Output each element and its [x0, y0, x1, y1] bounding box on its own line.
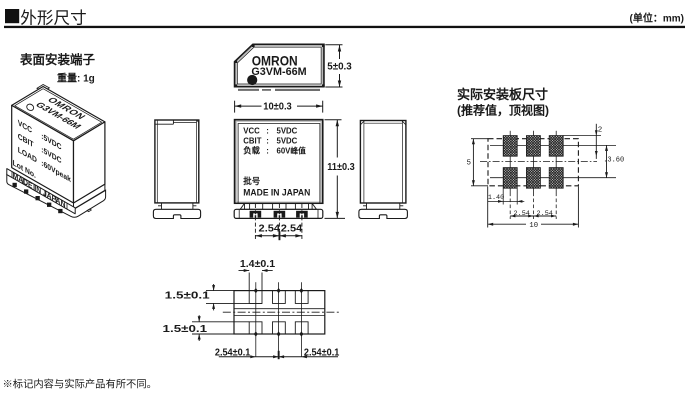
svg-text:1.5±0.1: 1.5±0.1: [165, 291, 211, 302]
svg-text:5VDC: 5VDC: [277, 136, 298, 145]
svg-text:.3.60: .3.60: [603, 156, 624, 164]
svg-text:5±0.3: 5±0.3: [327, 62, 352, 73]
svg-text:2.54: 2.54: [514, 210, 530, 218]
svg-text:表面安装端子: 表面安装端子: [19, 52, 96, 67]
svg-text:2.54: 2.54: [537, 210, 553, 218]
svg-text:60V峰值: 60V峰值: [277, 145, 307, 155]
svg-text:5: 5: [466, 160, 471, 168]
svg-text:外形尺寸: 外形尺寸: [20, 9, 86, 28]
svg-text:重量: 1g: 重量: 1g: [57, 72, 95, 85]
svg-text:2: 2: [598, 127, 603, 135]
svg-text:批号: 批号: [243, 176, 261, 186]
svg-text:5VDC: 5VDC: [277, 127, 298, 136]
svg-text::: :: [266, 127, 269, 136]
svg-text:1.4±0.1: 1.4±0.1: [240, 259, 276, 270]
svg-text:实际安装板尺寸: 实际安装板尺寸: [457, 87, 548, 102]
svg-text::: :: [266, 136, 269, 145]
svg-text:10: 10: [529, 222, 538, 230]
svg-text:G3VM-66M: G3VM-66M: [251, 66, 306, 78]
svg-text:10±0.3: 10±0.3: [263, 102, 292, 113]
svg-text:(推荐值，顶视图): (推荐值，顶视图): [457, 103, 549, 118]
svg-text:2.54: 2.54: [281, 224, 303, 235]
svg-text::: :: [266, 146, 269, 155]
svg-text:(单位：mm): (单位：mm): [630, 12, 684, 25]
svg-text:※标记内容与实际产品有所不同。: ※标记内容与实际产品有所不同。: [3, 378, 157, 391]
svg-text:负载: 负载: [243, 145, 260, 155]
svg-text:11±0.3: 11±0.3: [327, 162, 355, 173]
svg-text:VCC: VCC: [243, 127, 260, 136]
svg-text:1.5±0.1: 1.5±0.1: [163, 324, 208, 335]
svg-text:1.40: 1.40: [488, 194, 504, 202]
svg-text:CBIT: CBIT: [243, 136, 261, 145]
svg-text:MADE IN JAPAN: MADE IN JAPAN: [243, 188, 310, 198]
svg-text:2.54: 2.54: [259, 224, 281, 235]
